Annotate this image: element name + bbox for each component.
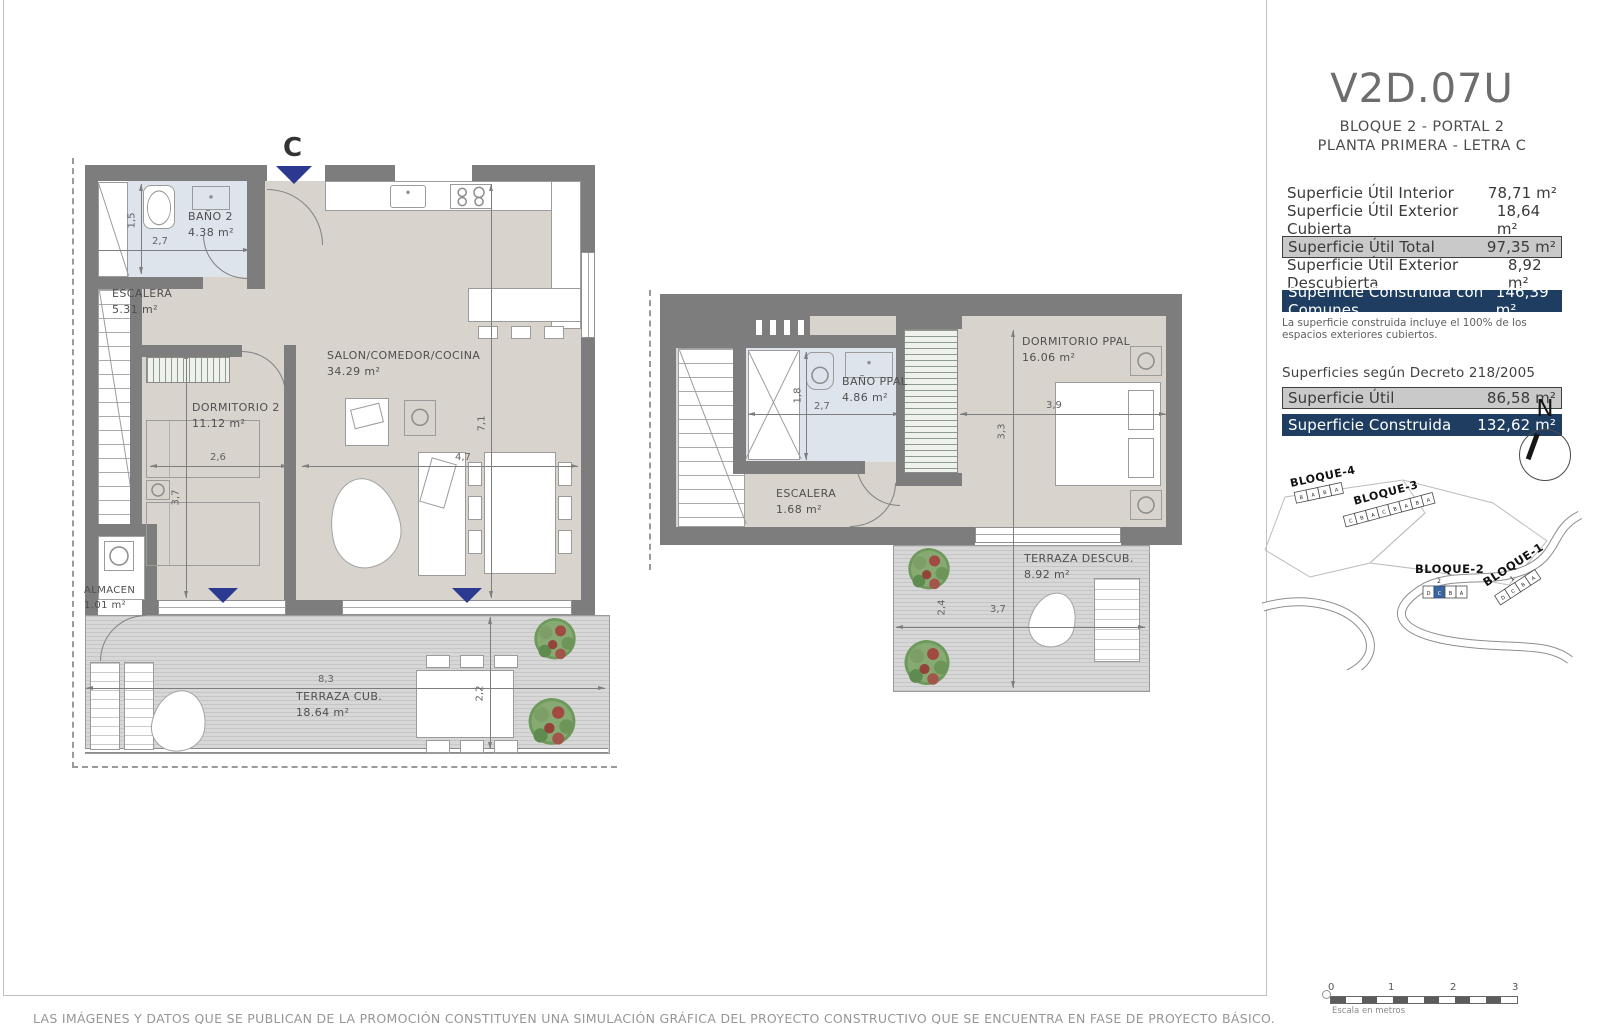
- door-marker-icon: [452, 588, 482, 603]
- room-name: TERRAZA DESCUB.: [1024, 551, 1134, 567]
- surface-value: 97,35 m²: [1487, 238, 1556, 256]
- chair: [558, 496, 572, 520]
- surface-value: 78,71 m²: [1488, 184, 1557, 202]
- room-label-dormitorio2: DORMITORIO 2 11.12 m²: [192, 400, 280, 432]
- surface-label: Superficie Útil: [1288, 389, 1395, 407]
- dim-label: 1,5: [126, 213, 137, 229]
- sink: [192, 186, 230, 210]
- nightstand: [1130, 346, 1162, 376]
- chair: [468, 530, 482, 554]
- dim-line: [1013, 330, 1014, 688]
- dim-text: 7,1: [476, 416, 487, 432]
- room-area: 8.92 m²: [1024, 567, 1134, 583]
- surface-value: 146,39 m²: [1496, 283, 1556, 319]
- wall: [660, 527, 975, 545]
- dim-line: [86, 250, 250, 251]
- room-name: ESCALERA: [776, 486, 836, 502]
- dim-label: 2,4: [936, 600, 947, 616]
- wall: [284, 345, 296, 600]
- dim-label: 3,9: [1046, 400, 1062, 411]
- wall: [581, 338, 595, 615]
- wall: [660, 294, 1182, 316]
- road: [1263, 602, 1370, 670]
- entrance-arrow-icon: [276, 166, 312, 184]
- unit-letter: A: [1460, 591, 1464, 597]
- surface-note: La superficie construida incluye el 100%…: [1282, 317, 1562, 341]
- dim-text: 2,2: [474, 686, 485, 702]
- room-name: ALMACEN: [84, 584, 135, 599]
- dim-text: 1,8: [792, 388, 803, 404]
- surface-row: Superficie Útil Exterior Descubierta 8,9…: [1282, 263, 1562, 285]
- terrace-table: [416, 670, 514, 738]
- scale-tick: 1: [1388, 982, 1394, 993]
- dim-label: 2,7: [152, 236, 168, 247]
- wall: [130, 289, 142, 525]
- chair: [468, 496, 482, 520]
- dim-line: [748, 414, 900, 415]
- wall: [286, 600, 342, 615]
- plant: [526, 698, 578, 750]
- room-name: SALON/COMEDOR/COCINA: [327, 348, 480, 364]
- block-label: BLOQUE-2: [1415, 562, 1484, 576]
- property-line: [72, 766, 617, 768]
- unit-code: V2D.07U: [1282, 66, 1562, 112]
- room-name: ESCALERA: [112, 286, 172, 302]
- chair: [460, 655, 484, 668]
- wall: [896, 473, 962, 486]
- dim-label: 1,8: [792, 388, 803, 404]
- surface-value: 18,64 m²: [1497, 202, 1557, 238]
- dim-text: 2,4: [936, 600, 947, 616]
- room-area: 1.01 m²: [84, 599, 135, 614]
- surface-label: Superficie Útil Total: [1288, 238, 1435, 256]
- unit-letter: B: [1449, 591, 1453, 597]
- wall: [85, 165, 98, 289]
- dim-line: [806, 352, 807, 460]
- room-name: BAÑO 2: [188, 209, 234, 225]
- dim-line: [490, 617, 491, 749]
- unit-letter: C: [1438, 591, 1442, 597]
- decree-table: Superficie Útil 86,58 m² Superficie Cons…: [1282, 387, 1562, 436]
- room-label-dormitorio-ppal: DORMITORIO PPAL 16.06 m²: [1022, 334, 1130, 366]
- decree-heading: Superficies según Decreto 218/2005: [1282, 365, 1562, 381]
- toilet: [806, 352, 834, 390]
- room-name: BAÑO PPAL: [842, 374, 907, 390]
- dim-label: 2,2: [474, 686, 485, 702]
- dim-line: [896, 627, 1145, 628]
- room-area: 34.29 m²: [327, 364, 480, 380]
- room-area: 5.31 m²: [112, 302, 172, 318]
- room-label-bano2: BAÑO 2 4.38 m²: [188, 209, 234, 241]
- room-area: 18.64 m²: [296, 705, 382, 721]
- wall: [572, 600, 595, 615]
- dining-table: [484, 452, 556, 574]
- room-area: 4.38 m²: [188, 225, 234, 241]
- scale-bar-origin-icon: [1322, 990, 1331, 999]
- kitchen-sink: [390, 185, 426, 208]
- dim-text: 2,7: [814, 401, 830, 412]
- wall: [1121, 527, 1182, 545]
- chair: [494, 655, 518, 668]
- wall: [1166, 294, 1182, 545]
- dim-text: 3,9: [1046, 400, 1062, 411]
- dim-label: 3,3: [996, 424, 1007, 440]
- room-label-terraza-descub: TERRAZA DESCUB. 8.92 m²: [1024, 551, 1134, 583]
- room-label-escalera: ESCALERA 5.31 m²: [112, 286, 172, 318]
- property-line: [72, 158, 74, 768]
- block-label: BLOQUE-4: [1289, 463, 1357, 490]
- plant: [532, 618, 578, 664]
- room-area: 4.86 m²: [842, 390, 907, 406]
- plant: [906, 548, 952, 594]
- sun-lounger: [90, 662, 120, 750]
- wall: [733, 335, 746, 474]
- kitchen-island: [468, 288, 581, 322]
- surface-label: Superficie Útil Exterior Cubierta: [1287, 202, 1497, 238]
- dim-line: [186, 352, 187, 598]
- entrance-letter-text: C: [283, 130, 302, 168]
- dim-line: [141, 184, 142, 274]
- stool: [511, 326, 531, 339]
- chair: [460, 740, 484, 753]
- surface-label: Superficie Construida con Comunes: [1288, 283, 1496, 319]
- bench: [1094, 578, 1140, 662]
- scale-tick: 3: [1512, 982, 1518, 993]
- pillow: [1128, 390, 1154, 430]
- surface-label: Superficie Útil Interior: [1287, 184, 1454, 202]
- north-text: N: [1536, 396, 1553, 422]
- wall: [325, 165, 395, 181]
- wall: [247, 165, 265, 289]
- block-units: D C B A: [1423, 586, 1467, 598]
- wall: [85, 165, 267, 181]
- wall: [896, 316, 962, 329]
- dim-label: 7,1: [476, 416, 487, 432]
- wall: [472, 165, 595, 181]
- room-area: 1.68 m²: [776, 502, 836, 518]
- wall: [733, 461, 865, 474]
- room-name: DORMITORIO 2: [192, 400, 280, 416]
- dim-line: [150, 466, 288, 467]
- stool: [478, 326, 498, 339]
- surface-row-constructed: Superficie Construida con Comunes 146,39…: [1282, 290, 1562, 312]
- glass-door: [975, 527, 1121, 543]
- floorplan-sheet: C: [0, 0, 1600, 1024]
- dim-line: [491, 184, 492, 598]
- site-plan: BLOQUE-4 B A B A BLOQUE-3: [1255, 455, 1585, 670]
- window: [581, 252, 595, 338]
- wardrobe: [904, 329, 958, 473]
- surface-table: Superficie Útil Interior 78,71 m² Superf…: [1282, 182, 1562, 341]
- site-block-4: BLOQUE-4 B A B A: [1289, 463, 1360, 503]
- disclaimer: LAS IMÁGENES Y DATOS QUE SE PUBLICAN DE …: [33, 1011, 1275, 1024]
- dim-text: 3,3: [996, 424, 1007, 440]
- portal-number: 2: [1437, 578, 1441, 585]
- staircase: [98, 289, 132, 525]
- surface-label: Superficie Construida: [1288, 416, 1451, 434]
- wall: [142, 600, 158, 615]
- room-area: 16.06 m²: [1022, 350, 1130, 366]
- dim-line: [302, 466, 578, 467]
- compass-north-label: N: [1530, 396, 1560, 422]
- dim-label: 2,6: [210, 452, 226, 463]
- room-label-almacen: ALMACEN 1.01 m²: [84, 584, 135, 613]
- dim-label: 3,7: [990, 604, 1006, 615]
- room-label-salon: SALON/COMEDOR/COCINA 34.29 m²: [327, 348, 480, 380]
- dim-line: [960, 414, 1166, 415]
- roads: [1263, 515, 1580, 670]
- dim-label: 2,7: [814, 401, 830, 412]
- info-panel: V2D.07U BLOQUE 2 - PORTAL 2 PLANTA PRIME…: [1282, 0, 1562, 441]
- decree-row: Superficie Útil 86,58 m²: [1282, 387, 1562, 409]
- cooktop: [450, 184, 492, 209]
- dim-text: 3,7: [990, 604, 1006, 615]
- wardrobe: [146, 357, 230, 383]
- unit-block-portal: BLOQUE 2 - PORTAL 2: [1282, 119, 1562, 136]
- road: [1263, 602, 1370, 670]
- washing-machine: [104, 541, 134, 571]
- dim-text: 8,3: [318, 674, 334, 685]
- wall: [660, 294, 676, 545]
- site-block-3: BLOQUE-3 C B A C B A B A: [1339, 475, 1435, 527]
- room-label-bano-ppal: BAÑO PPAL 4.86 m²: [842, 374, 907, 406]
- room-name: TERRAZA CUB.: [296, 689, 382, 705]
- surface-row: Superficie Útil Exterior Cubierta 18,64 …: [1282, 209, 1562, 231]
- plant: [902, 640, 952, 690]
- dim-text: 2,6: [210, 452, 226, 463]
- scale-bar: 0 1 2 3 Escala en metros: [1330, 982, 1520, 1022]
- dim-label: 8,3: [318, 674, 334, 685]
- chair: [426, 655, 450, 668]
- wall: [733, 335, 905, 348]
- unit-letter: D: [1427, 591, 1431, 597]
- scale-tick: 2: [1450, 982, 1456, 993]
- scale-caption: Escala en metros: [1332, 1006, 1405, 1016]
- stool: [544, 326, 564, 339]
- entrance-letter: C: [283, 130, 302, 168]
- door-marker-icon: [208, 588, 238, 603]
- chair: [426, 740, 450, 753]
- chair: [558, 530, 572, 554]
- room-area: 11.12 m²: [192, 416, 280, 432]
- decree-row: Superficie Construida 132,62 m²: [1282, 414, 1562, 436]
- nightstand: [1130, 490, 1162, 520]
- nightstand: [146, 480, 170, 500]
- dim-text: 2,7: [152, 236, 168, 247]
- dim-label: 3,7: [170, 490, 181, 506]
- room-label-terraza-cub: TERRAZA CUB. 18.64 m²: [296, 689, 382, 721]
- wall: [581, 165, 595, 252]
- wall: [85, 289, 98, 615]
- room-label-escalera: ESCALERA 1.68 m²: [776, 486, 836, 518]
- room-name: DORMITORIO PPAL: [1022, 334, 1130, 350]
- dim-label: 4,7: [455, 452, 471, 463]
- unit-floor-letter: PLANTA PRIMERA - LETRA C: [1282, 138, 1562, 155]
- sun-lounger: [124, 662, 154, 750]
- dim-text: 1,5: [126, 213, 137, 229]
- kitchen-counter: [325, 181, 553, 211]
- chair: [494, 740, 518, 753]
- bathtub: [143, 185, 175, 229]
- wall: [142, 345, 242, 357]
- property-line: [649, 290, 651, 570]
- scale-bar-segments: [1330, 996, 1518, 1004]
- side-table: [404, 400, 436, 436]
- dim-text: 3,7: [170, 490, 181, 506]
- bed: [146, 502, 260, 566]
- dim-text: 4,7: [455, 452, 471, 463]
- pillow: [1128, 438, 1154, 478]
